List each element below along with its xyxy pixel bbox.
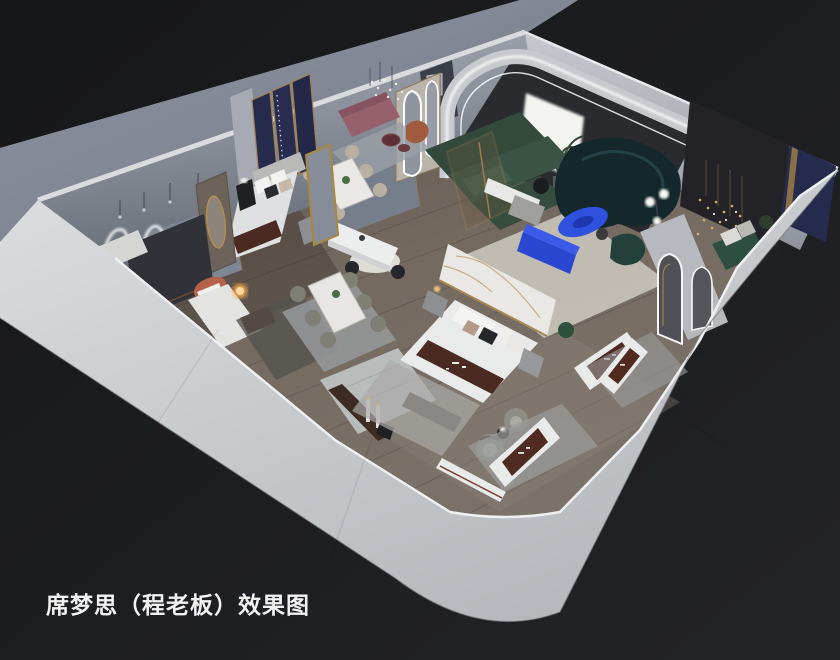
table-lamp xyxy=(434,286,440,292)
caption-title: 席梦思（程老板）效果图 xyxy=(46,591,310,619)
cube-lamp xyxy=(241,178,247,183)
render-canvas: 席梦思（程老板）效果图 xyxy=(0,0,840,660)
burgundy-table xyxy=(382,134,400,146)
table-plant xyxy=(342,176,350,184)
table-plant xyxy=(332,290,340,298)
green-pouf xyxy=(558,322,574,338)
side-table xyxy=(596,228,608,240)
burgundy-table xyxy=(398,144,410,152)
black-chair xyxy=(533,178,549,194)
arch-mirror xyxy=(658,254,682,344)
showroom-render xyxy=(0,0,840,660)
